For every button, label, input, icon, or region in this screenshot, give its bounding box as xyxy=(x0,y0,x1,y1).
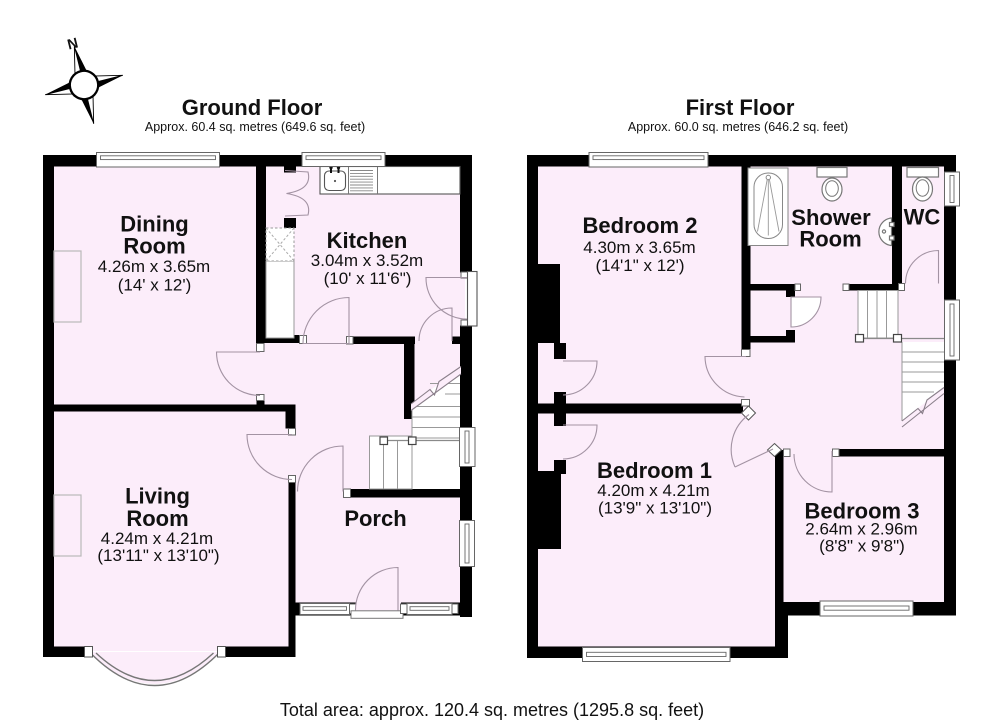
svg-text:Approx. 60.0 sq. metres (646.2: Approx. 60.0 sq. metres (646.2 sq. feet) xyxy=(628,120,848,134)
svg-text:Approx. 60.4 sq. metres (649.6: Approx. 60.4 sq. metres (649.6 sq. feet) xyxy=(145,120,365,134)
svg-text:Room: Room xyxy=(799,227,861,252)
svg-text:Living: Living xyxy=(125,484,190,509)
svg-text:WC: WC xyxy=(904,205,941,230)
svg-text:Bedroom 2: Bedroom 2 xyxy=(583,213,698,238)
svg-text:4.20m x 4.21m: 4.20m x 4.21m xyxy=(597,481,709,500)
svg-text:Kitchen: Kitchen xyxy=(327,228,408,253)
svg-text:4.30m x 3.65m: 4.30m x 3.65m xyxy=(583,238,695,257)
svg-text:3.04m x 3.52m: 3.04m x 3.52m xyxy=(311,251,423,270)
svg-text:(10' x 11'6"): (10' x 11'6") xyxy=(324,269,412,288)
svg-text:(13'9" x 13'10"): (13'9" x 13'10") xyxy=(598,499,712,518)
svg-text:(13'11" x 13'10"): (13'11" x 13'10") xyxy=(97,546,219,565)
svg-text:Room: Room xyxy=(126,506,188,531)
svg-text:Room: Room xyxy=(123,234,185,259)
svg-text:Porch: Porch xyxy=(344,506,406,531)
svg-text:(8'8" x 9'8"): (8'8" x 9'8") xyxy=(819,537,905,556)
svg-text:Ground Floor: Ground Floor xyxy=(182,95,323,120)
svg-text:4.26m x 3.65m: 4.26m x 3.65m xyxy=(98,257,210,276)
svg-text:Bedroom 1: Bedroom 1 xyxy=(597,458,712,483)
svg-text:Total area: approx. 120.4 sq.: Total area: approx. 120.4 sq. metres (12… xyxy=(280,700,704,720)
svg-text:First Floor: First Floor xyxy=(686,95,795,120)
svg-text:(14'1" x 12'): (14'1" x 12') xyxy=(595,256,684,275)
svg-text:(14' x 12'): (14' x 12') xyxy=(118,276,192,295)
